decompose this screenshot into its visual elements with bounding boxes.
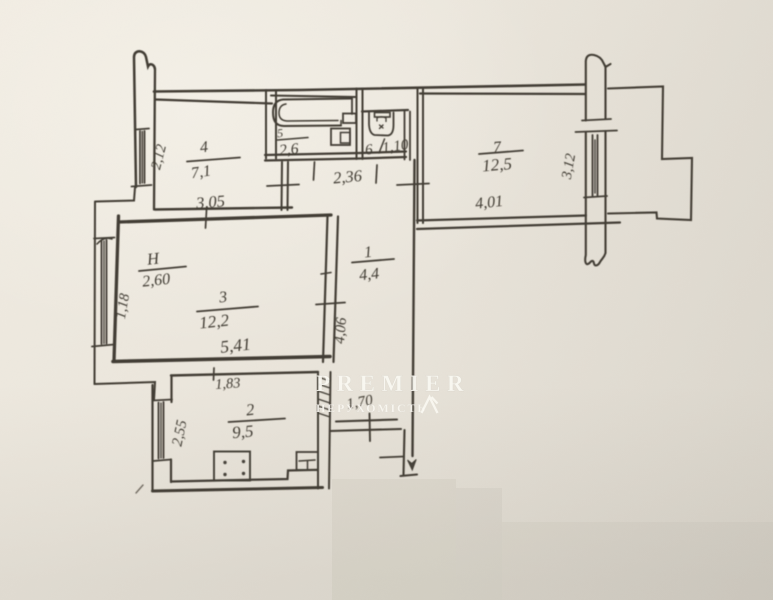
svg-text:НЕРУХОМІСТЬ: НЕРУХОМІСТЬ [316,401,427,415]
svg-text:2,36: 2,36 [332,166,363,188]
svg-text:1,83: 1,83 [215,375,241,393]
svg-text:9,5: 9,5 [231,421,254,442]
svg-text:5,41: 5,41 [219,334,252,357]
svg-text:4,4: 4,4 [358,265,380,284]
svg-text:3: 3 [217,289,228,307]
svg-text:PREMIER: PREMIER [316,371,470,396]
svg-text:3,05: 3,05 [194,191,225,213]
svg-text:12,2: 12,2 [198,311,230,333]
svg-text:7,1: 7,1 [190,163,212,183]
svg-text:2,60: 2,60 [141,271,171,291]
svg-text:4,06: 4,06 [332,316,350,344]
svg-text:2,6: 2,6 [278,140,299,159]
svg-text:12,5: 12,5 [481,154,512,176]
svg-text:4,01: 4,01 [474,193,504,213]
